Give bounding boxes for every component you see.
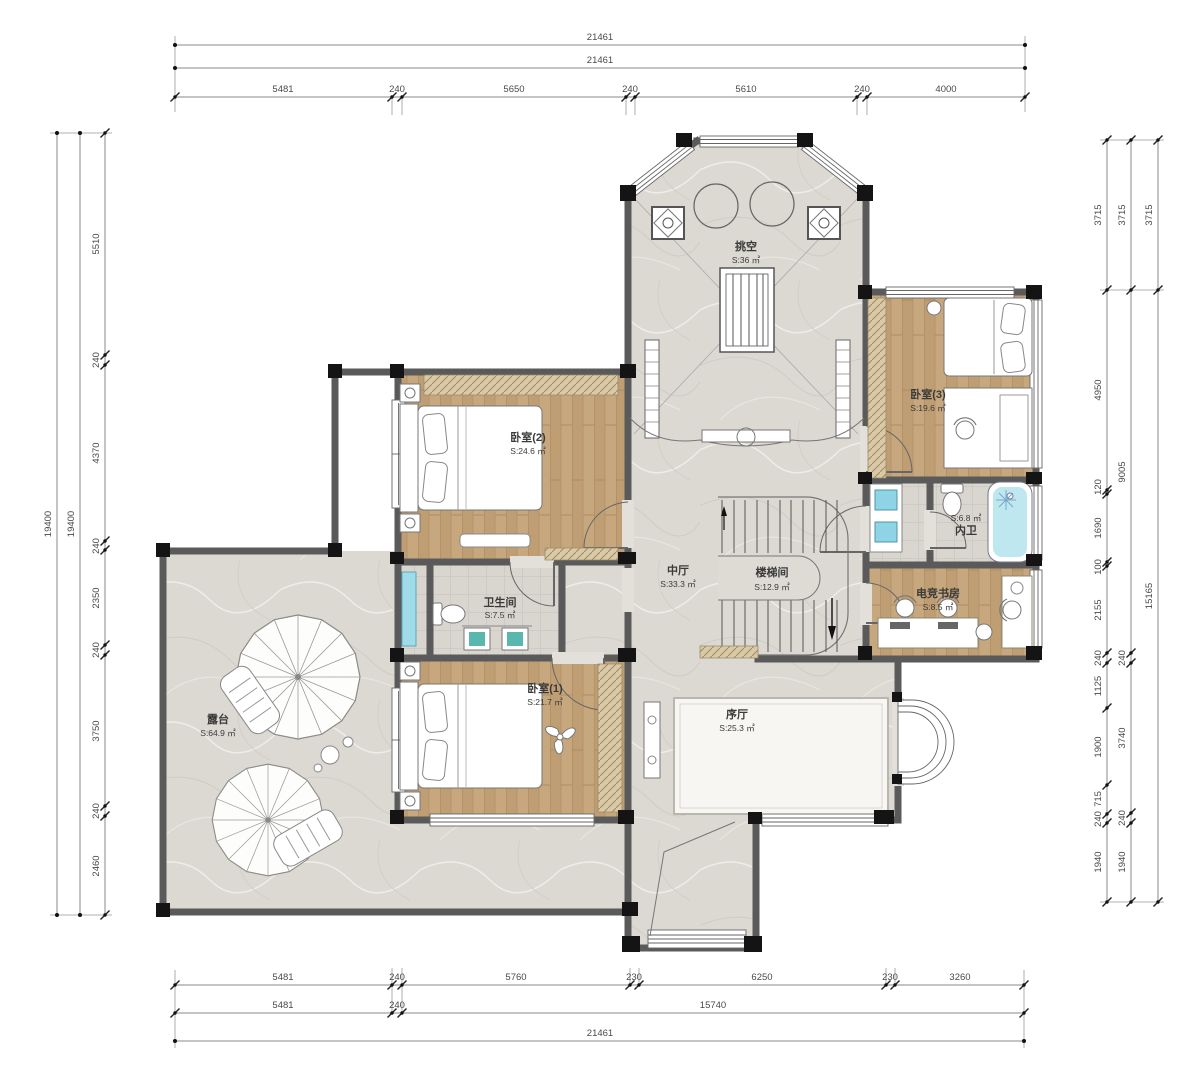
toilet bbox=[941, 484, 963, 516]
dim-label: 715 bbox=[1093, 791, 1104, 807]
room-area-bedroom3: S:19.6 ㎡ bbox=[910, 403, 946, 413]
dim-label: 240 bbox=[91, 538, 102, 554]
dim-label: 240 bbox=[389, 1000, 405, 1011]
dim-label: 100 bbox=[1093, 559, 1104, 575]
bathtub bbox=[988, 482, 1032, 562]
bedroom3-top-window bbox=[886, 287, 1014, 298]
hall-cabinet bbox=[700, 646, 758, 658]
dim-label: 21461 bbox=[587, 55, 613, 66]
room-area-bedroom1: S:21.7 ㎡ bbox=[527, 697, 563, 707]
dim-label: 4370 bbox=[91, 442, 102, 463]
room-name-terrace: 露台 bbox=[207, 712, 229, 726]
dim-label: 2350 bbox=[91, 587, 102, 608]
room-name-study: 电竞书房 bbox=[916, 586, 960, 600]
sparkle bbox=[996, 490, 1016, 510]
room-name-bathroom: 卫生间 bbox=[484, 595, 517, 609]
dim-label: 240 bbox=[1093, 650, 1104, 666]
dim-label: 120 bbox=[1093, 479, 1104, 495]
dimensions-left: 19400 19400 5510 240 4370 240 2350 240 3… bbox=[43, 129, 112, 920]
console-table bbox=[644, 702, 660, 778]
pillow bbox=[1000, 341, 1026, 374]
room-area-study: S:8.5 ㎡ bbox=[923, 602, 954, 612]
floor-extension bbox=[630, 820, 756, 948]
dim-label: 19400 bbox=[66, 511, 77, 537]
bed-headboard bbox=[400, 682, 418, 790]
nightstand bbox=[400, 514, 420, 532]
void-rail-right bbox=[836, 340, 850, 438]
dim-label: 1125 bbox=[1093, 676, 1104, 696]
dim-label: 5481 bbox=[272, 84, 293, 95]
sink bbox=[875, 490, 897, 510]
dim-label: 5510 bbox=[91, 233, 102, 254]
dim-label: 240 bbox=[1093, 811, 1104, 827]
extension-bottom-window bbox=[648, 930, 746, 948]
dim-label: 230 bbox=[882, 972, 898, 983]
wardrobe bbox=[868, 298, 886, 478]
dim-label: 3715 bbox=[1117, 204, 1128, 225]
nightstand bbox=[400, 384, 420, 402]
dim-label: 1940 bbox=[1117, 851, 1128, 872]
bedroom1-bottom-window bbox=[430, 814, 594, 826]
bed-headboard bbox=[400, 404, 418, 512]
room-area-bathroom: S:7.5 ㎡ bbox=[485, 610, 516, 620]
room-area-foyer: S:25.3 ㎡ bbox=[719, 723, 755, 733]
room-name-stairwell: 楼梯间 bbox=[756, 565, 789, 579]
dim-label: 240 bbox=[389, 972, 405, 983]
ornate-column-right bbox=[808, 207, 840, 239]
dim-label: 6250 bbox=[751, 972, 772, 983]
rug bbox=[674, 698, 888, 814]
room-name-bedroom2: 卧室(2) bbox=[510, 430, 546, 444]
dimensions-bottom: 5481 240 5760 230 6250 230 3260 5481 240… bbox=[171, 968, 1029, 1048]
dim-label: 4000 bbox=[935, 84, 956, 95]
bay-top-window bbox=[700, 136, 798, 147]
room-area-void: S:36 ㎡ bbox=[732, 255, 761, 265]
dim-label: 4950 bbox=[1093, 379, 1104, 400]
room-area-stairwell: S:12.9 ㎡ bbox=[754, 582, 790, 592]
floor-corridor bbox=[562, 562, 628, 658]
pillow bbox=[1000, 303, 1026, 336]
dim-label: 5481 bbox=[272, 1000, 293, 1011]
toilet bbox=[433, 603, 465, 625]
room-area-bedroom2: S:24.6 ㎡ bbox=[510, 446, 546, 456]
void-center-feature bbox=[720, 268, 774, 352]
foyer-bay-window bbox=[898, 700, 954, 784]
dim-label: 1690 bbox=[1093, 517, 1104, 538]
room-name-bedroom3: 卧室(3) bbox=[910, 387, 946, 401]
dim-label: 3715 bbox=[1144, 204, 1155, 225]
dim-label: 240 bbox=[854, 84, 870, 95]
dim-label: 9005 bbox=[1117, 461, 1128, 482]
cabinet bbox=[545, 548, 618, 560]
room-name-bedroom1: 卧室(1) bbox=[527, 681, 563, 695]
dim-label: 21461 bbox=[587, 1028, 613, 1039]
room-name-inner-bath: 内卫 bbox=[955, 523, 977, 537]
floor-plan-drawing: 挑空 S:36 ㎡ 卧室(2) S:24.6 ㎡ 卧室(3) S:19.6 ㎡ … bbox=[0, 0, 1200, 1071]
ornate-column-left bbox=[652, 207, 684, 239]
bench bbox=[460, 534, 530, 547]
dim-label: 5481 bbox=[272, 972, 293, 983]
dim-label: 15165 bbox=[1144, 583, 1155, 609]
dim-label: 3740 bbox=[1117, 727, 1128, 748]
side-table bbox=[976, 624, 992, 640]
dim-label: 240 bbox=[91, 352, 102, 368]
room-area-hall: S:33.3 ㎡ bbox=[660, 579, 696, 589]
dim-label: 240 bbox=[622, 84, 638, 95]
foyer-bottom-window bbox=[762, 814, 888, 826]
dim-label: 240 bbox=[91, 642, 102, 658]
dim-label: 230 bbox=[626, 972, 642, 983]
room-name-foyer: 序厅 bbox=[726, 707, 748, 721]
side-table bbox=[927, 301, 941, 315]
wardrobe bbox=[424, 375, 618, 395]
pillow bbox=[422, 413, 448, 455]
dim-label: 240 bbox=[1117, 810, 1128, 826]
void-rail-left bbox=[645, 340, 659, 438]
pillow bbox=[422, 461, 448, 503]
dim-label: 240 bbox=[1117, 650, 1128, 666]
dim-label: 3260 bbox=[949, 972, 970, 983]
dim-label: 5650 bbox=[503, 84, 524, 95]
dim-label: 3750 bbox=[91, 720, 102, 741]
floor-plan-canvas: 挑空 S:36 ㎡ 卧室(2) S:24.6 ㎡ 卧室(3) S:19.6 ㎡ … bbox=[0, 0, 1200, 1071]
shower-glass bbox=[402, 572, 416, 646]
pillow bbox=[422, 691, 448, 733]
dim-label: 2460 bbox=[91, 855, 102, 876]
dim-label: 5610 bbox=[735, 84, 756, 95]
round-table bbox=[321, 746, 339, 764]
dim-label: 5760 bbox=[505, 972, 526, 983]
room-area-inner-bath: S:6.8 ㎡ bbox=[951, 513, 982, 523]
dim-label: 1900 bbox=[1093, 736, 1104, 757]
dim-label: 2155 bbox=[1093, 599, 1104, 620]
dimensions-top: 21461 21461 5481 240 5650 240 5610 240 4… bbox=[171, 32, 1030, 115]
dim-label: 15740 bbox=[700, 1000, 726, 1011]
nightstand bbox=[400, 792, 420, 810]
dim-label: 240 bbox=[91, 803, 102, 819]
dim-label: 1940 bbox=[1093, 851, 1104, 872]
wardrobe bbox=[598, 664, 622, 812]
dimensions-right: 3715 4950 120 1690 100 2155 240 1125 190… bbox=[1093, 136, 1164, 907]
dim-label: 19400 bbox=[43, 511, 54, 537]
room-name-hall: 中厅 bbox=[667, 563, 689, 577]
dim-label: 240 bbox=[389, 84, 405, 95]
dim-label: 21461 bbox=[587, 32, 613, 43]
room-area-terrace: S:64.9 ㎡ bbox=[200, 728, 236, 738]
pillow bbox=[422, 739, 448, 781]
room-name-void: 挑空 bbox=[735, 239, 757, 253]
sink bbox=[875, 522, 897, 542]
nightstand bbox=[400, 662, 420, 680]
dim-label: 3715 bbox=[1093, 204, 1104, 225]
